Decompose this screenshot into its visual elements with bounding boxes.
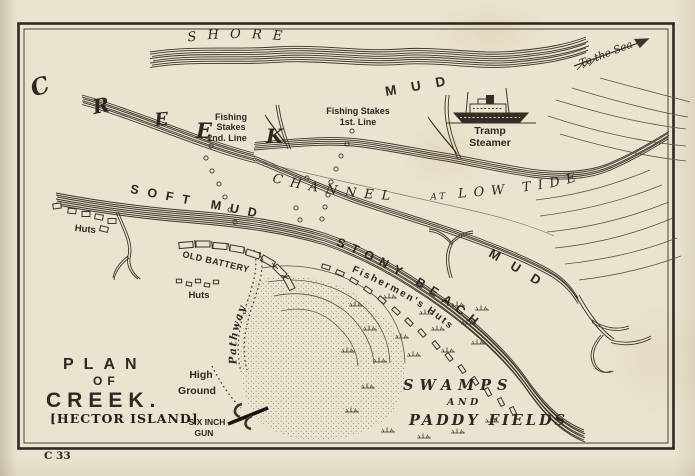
svg-text:CREEK.: CREEK. bbox=[46, 389, 161, 412]
svg-text:E: E bbox=[153, 109, 170, 131]
channel-north-bank bbox=[254, 131, 669, 179]
svg-text:SWAMPS: SWAMPS bbox=[403, 377, 514, 394]
map-title: PLAN OF CREEK. [HECTOR ISLAND] bbox=[46, 356, 199, 426]
svg-text:Ground: Ground bbox=[178, 385, 216, 397]
svg-text:Steamer: Steamer bbox=[469, 137, 510, 149]
svg-text:Fishing Stakes: Fishing Stakes bbox=[326, 106, 390, 116]
channel-at-label: AT bbox=[429, 192, 449, 203]
svg-text:GUN: GUN bbox=[195, 428, 214, 438]
svg-text:2nd. Line: 2nd. Line bbox=[207, 133, 247, 143]
soft-mud-label: SOFT MUD bbox=[129, 182, 267, 222]
plate-number: C 33 bbox=[44, 450, 71, 462]
svg-text:1st. Line: 1st. Line bbox=[340, 117, 377, 127]
huts-mid-label: Huts bbox=[188, 290, 209, 301]
svg-text:Stakes: Stakes bbox=[216, 122, 245, 132]
high-ground-dotted-edge bbox=[212, 366, 241, 408]
huts-mid-group bbox=[176, 279, 218, 287]
svg-text:High: High bbox=[189, 369, 212, 381]
huts-left-label: Huts bbox=[74, 223, 96, 236]
fishing-stakes-2nd-label: Fishing Stakes 2nd. Line bbox=[207, 112, 247, 143]
channel-label: CHANNEL bbox=[271, 171, 399, 204]
flow-lines-upper-right bbox=[548, 78, 690, 161]
mud-top-label: MUD bbox=[384, 71, 461, 99]
shore-label: SHORE bbox=[187, 27, 294, 45]
fishing-stakes-1st-label: Fishing Stakes 1st. Line bbox=[326, 106, 390, 127]
tramp-steamer-label: Tramp Steamer bbox=[469, 125, 510, 149]
svg-text:PADDY FIELDS: PADDY FIELDS bbox=[408, 412, 568, 429]
svg-text:PLAN: PLAN bbox=[63, 356, 147, 373]
svg-text:Fishing: Fishing bbox=[215, 112, 247, 122]
svg-text:R: R bbox=[90, 92, 112, 119]
svg-text:OF: OF bbox=[93, 374, 120, 388]
map-paper: SHORE C R E E K MUD To the Sea Tramp Ste… bbox=[0, 0, 695, 476]
svg-text:AND: AND bbox=[446, 397, 482, 408]
to-the-sea-label: To the Sea bbox=[578, 39, 635, 70]
svg-text:K: K bbox=[265, 124, 285, 148]
map-canvas: SHORE C R E E K MUD To the Sea Tramp Ste… bbox=[0, 0, 695, 476]
tramp-steamer-illustration bbox=[446, 88, 536, 123]
high-ground-label: High Ground bbox=[178, 369, 216, 397]
svg-text:[HECTOR ISLAND]: [HECTOR ISLAND] bbox=[50, 411, 199, 426]
svg-text:C: C bbox=[27, 71, 54, 103]
svg-text:Tramp: Tramp bbox=[474, 125, 506, 137]
